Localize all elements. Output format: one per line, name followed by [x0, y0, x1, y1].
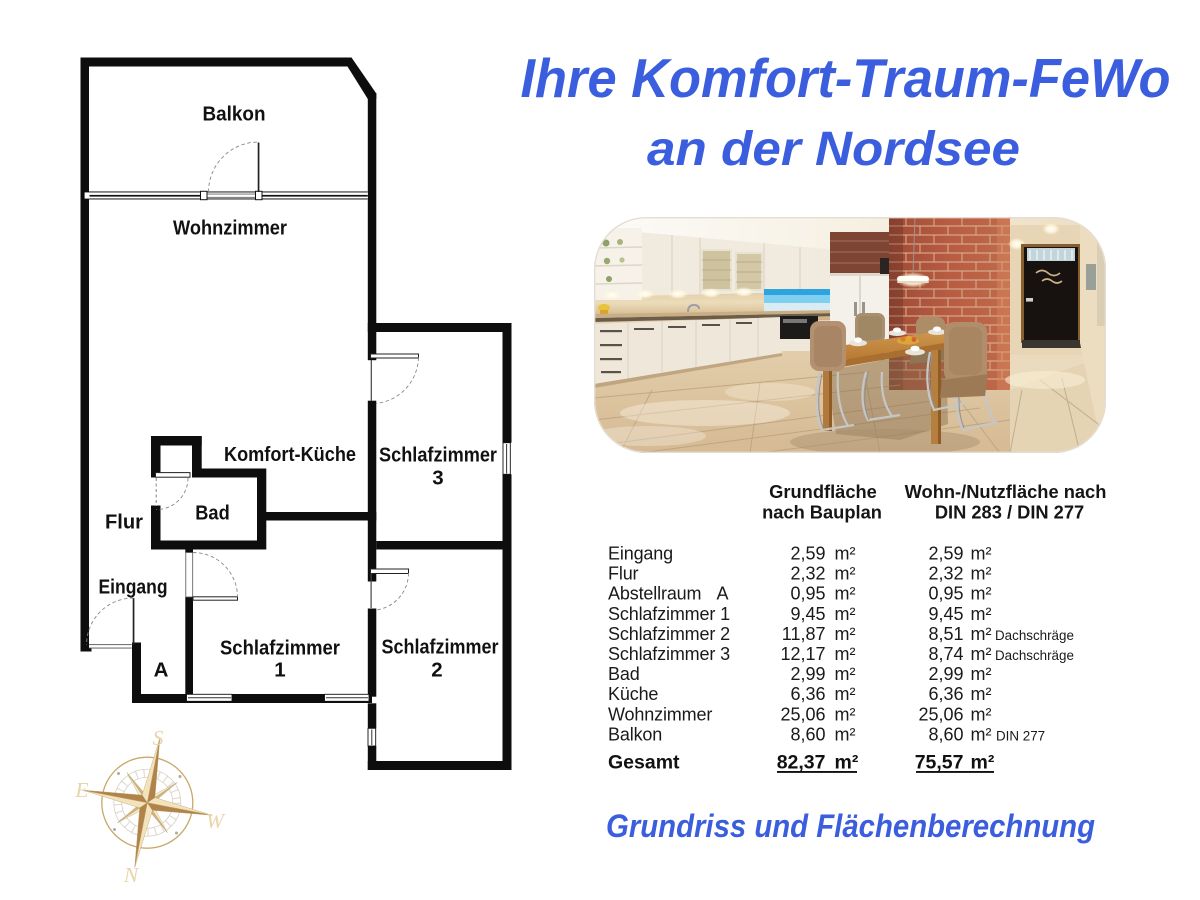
svg-text:Dachschräge: Dachschräge [995, 628, 1074, 643]
svg-text:m²: m² [835, 624, 856, 644]
svg-text:m²: m² [835, 644, 856, 664]
svg-text:m²: m² [835, 704, 856, 724]
svg-text:2,59: 2,59 [790, 544, 825, 564]
svg-text:Flur: Flur [608, 564, 639, 584]
svg-text:Küche: Küche [608, 684, 658, 704]
svg-text:DIN 277: DIN 277 [996, 728, 1045, 743]
svg-text:2,32: 2,32 [790, 564, 825, 584]
svg-text:Flur: Flur [105, 510, 143, 533]
svg-text:8,60: 8,60 [790, 724, 825, 744]
svg-text:11,87: 11,87 [782, 624, 826, 644]
svg-text:Grundriss und Flächenberechnun: Grundriss und Flächenberechnung [606, 808, 1095, 844]
svg-text:m²: m² [835, 544, 856, 564]
svg-text:25,06: 25,06 [918, 704, 963, 724]
svg-text:Schlafzimmer: Schlafzimmer [382, 635, 499, 658]
svg-text:2,59: 2,59 [928, 544, 963, 564]
svg-text:Bad: Bad [195, 501, 230, 524]
svg-text:m²: m² [971, 584, 992, 604]
svg-text:Grundfläche: Grundfläche [769, 481, 877, 502]
svg-text:m²: m² [971, 664, 992, 684]
svg-text:6,36: 6,36 [928, 684, 963, 704]
svg-text:m²: m² [971, 624, 992, 644]
svg-text:Gesamt: Gesamt [608, 752, 680, 774]
svg-text:m²: m² [835, 564, 856, 584]
svg-text:m²: m² [971, 644, 992, 664]
svg-text:m²: m² [835, 752, 859, 774]
svg-text:0,95: 0,95 [928, 584, 963, 604]
svg-text:A: A [154, 658, 169, 681]
svg-text:Balkon: Balkon [608, 724, 662, 744]
svg-text:A: A [717, 584, 729, 604]
svg-text:m²: m² [835, 584, 856, 604]
svg-text:75,57: 75,57 [915, 752, 964, 774]
svg-text:0,95: 0,95 [790, 584, 825, 604]
svg-text:Balkon: Balkon [203, 102, 266, 125]
svg-text:8,51: 8,51 [928, 624, 963, 644]
svg-text:Eingang: Eingang [99, 575, 168, 598]
svg-text:m²: m² [971, 564, 992, 584]
svg-text:9,45: 9,45 [790, 604, 825, 624]
svg-text:2: 2 [431, 658, 442, 681]
svg-text:W: W [206, 809, 226, 833]
svg-text:m²: m² [971, 544, 992, 564]
svg-text:Schlafzimmer 3: Schlafzimmer 3 [608, 644, 730, 664]
svg-text:2,99: 2,99 [790, 664, 825, 684]
svg-text:Komfort-Küche: Komfort-Küche [224, 443, 356, 466]
svg-text:m²: m² [971, 752, 995, 774]
svg-text:Schlafzimmer: Schlafzimmer [220, 636, 340, 659]
svg-text:25,06: 25,06 [780, 704, 825, 724]
svg-text:m²: m² [971, 684, 992, 704]
svg-text:2,99: 2,99 [928, 664, 963, 684]
svg-text:m²: m² [835, 604, 856, 624]
svg-text:8,74: 8,74 [928, 644, 963, 664]
svg-text:Eingang: Eingang [608, 544, 673, 564]
svg-text:3: 3 [432, 466, 443, 489]
svg-text:82,37: 82,37 [777, 752, 826, 774]
svg-text:nach Bauplan: nach Bauplan [762, 501, 882, 522]
svg-text:Wohn-/Nutzfläche nach: Wohn-/Nutzfläche nach [905, 481, 1107, 502]
svg-text:8,60: 8,60 [928, 724, 963, 744]
svg-text:m²: m² [835, 724, 856, 744]
svg-text:9,45: 9,45 [928, 604, 963, 624]
svg-text:Schlafzimmer 1: Schlafzimmer 1 [608, 604, 730, 624]
svg-text:Wohnzimmer: Wohnzimmer [608, 704, 712, 724]
svg-text:N: N [123, 863, 140, 887]
svg-text:12,17: 12,17 [780, 644, 825, 664]
svg-text:S: S [153, 726, 164, 750]
svg-text:2,32: 2,32 [928, 564, 963, 584]
svg-text:an der Nordsee: an der Nordsee [647, 123, 1020, 176]
svg-text:Bad: Bad [608, 664, 640, 684]
svg-text:m²: m² [971, 724, 992, 744]
svg-text:Dachschräge: Dachschräge [995, 648, 1074, 663]
svg-text:m²: m² [835, 684, 856, 704]
svg-text:DIN 283 / DIN 277: DIN 283 / DIN 277 [935, 501, 1084, 522]
svg-text:m²: m² [971, 704, 992, 724]
svg-text:Ihre Komfort-Traum-FeWo: Ihre Komfort-Traum-FeWo [521, 47, 1171, 109]
svg-text:Schlafzimmer: Schlafzimmer [379, 443, 497, 466]
svg-text:m²: m² [835, 664, 856, 684]
svg-text:1: 1 [274, 658, 285, 681]
svg-text:E: E [74, 778, 88, 802]
svg-text:m²: m² [971, 604, 992, 624]
svg-text:6,36: 6,36 [790, 684, 825, 704]
svg-text:Schlafzimmer 2: Schlafzimmer 2 [608, 624, 730, 644]
svg-text:Wohnzimmer: Wohnzimmer [173, 216, 287, 239]
svg-text:Abstellraum: Abstellraum [608, 584, 701, 604]
